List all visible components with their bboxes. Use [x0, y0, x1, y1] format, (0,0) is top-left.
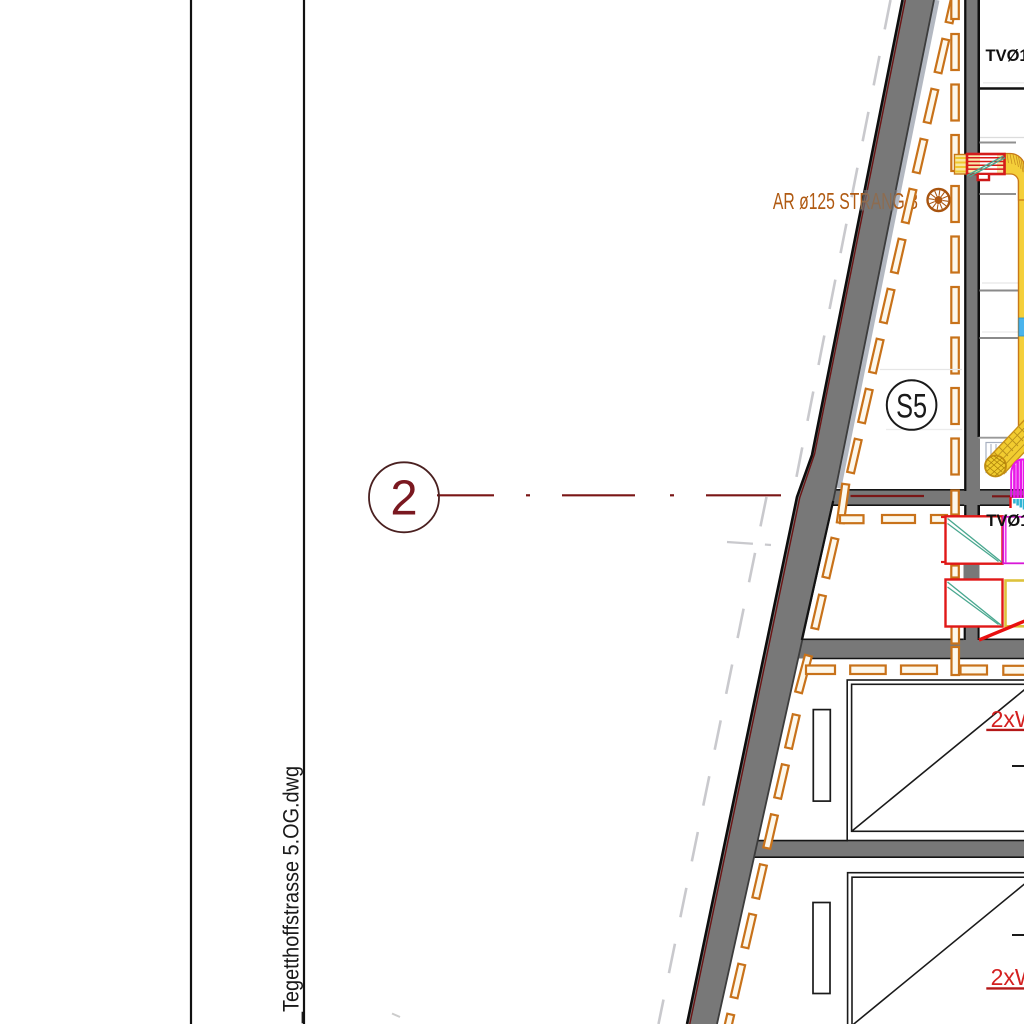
- svg-text:TVØ1: TVØ1: [986, 512, 1024, 530]
- svg-text:_Tegetthoffstrasse 5.OG.dwg: _Tegetthoffstrasse 5.OG.dwg: [279, 766, 304, 1024]
- svg-text:2xW: 2xW: [991, 706, 1024, 732]
- svg-text:S5: S5: [896, 388, 927, 426]
- svg-text:TVØ1: TVØ1: [986, 47, 1024, 65]
- svg-text:2: 2: [390, 472, 417, 526]
- svg-text:2xW: 2xW: [991, 964, 1024, 990]
